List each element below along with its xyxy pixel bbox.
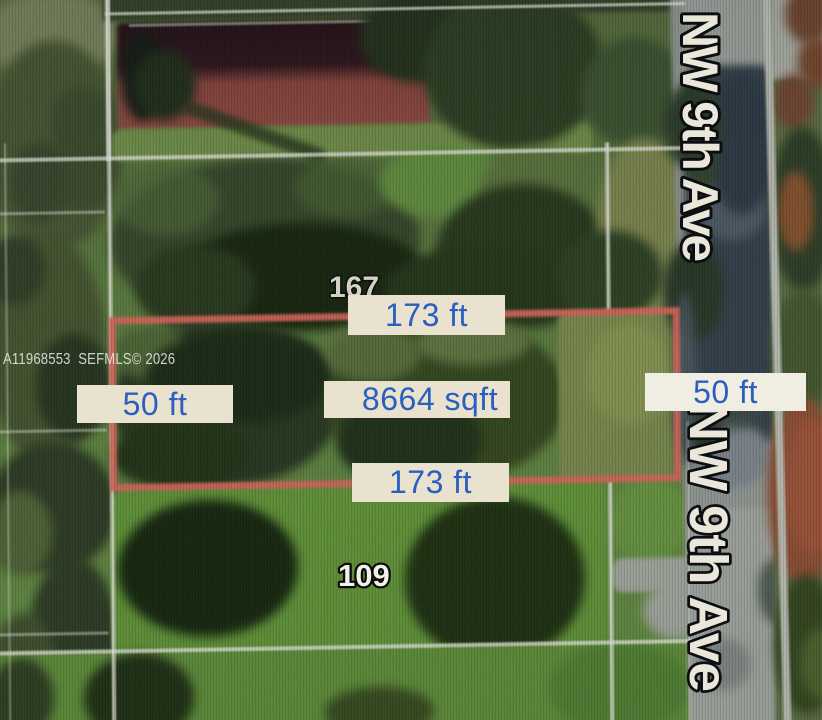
svg-text:NW 9th Ave: NW 9th Ave — [672, 12, 728, 262]
svg-text:109: 109 — [338, 558, 390, 593]
svg-text:NW 9th Ave: NW 9th Ave — [678, 402, 738, 692]
